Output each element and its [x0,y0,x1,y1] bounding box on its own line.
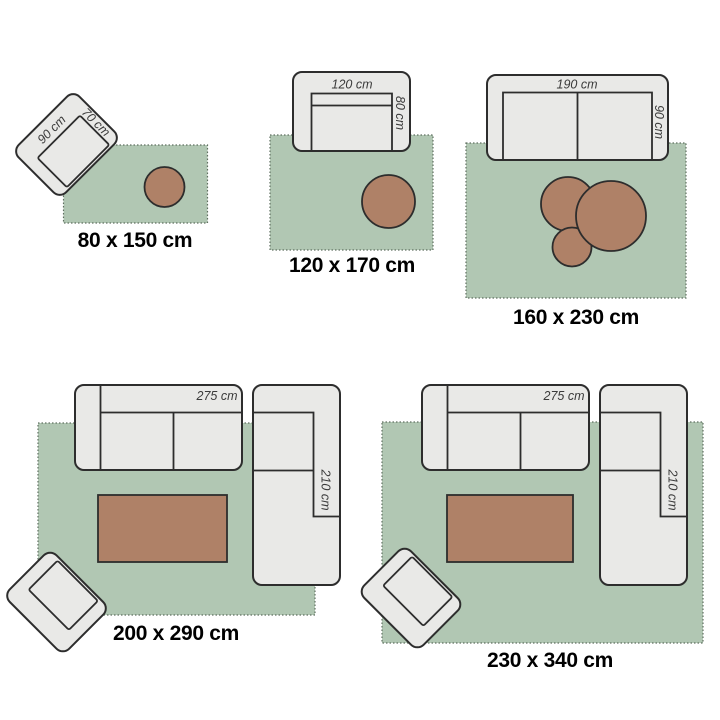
loveseat-sofa: 120 cm 80 cm [293,72,410,151]
rug-size-guide: 90 cm 70 cm 80 x 150 cm 120 cm 80 cm 120… [0,0,720,720]
rug-size-label: 230 x 340 cm [487,649,613,672]
sofa-depth-label: 80 cm [393,96,407,130]
sofa-depth-label: 210 cm [666,469,680,511]
rug-size-label: 120 x 170 cm [289,254,415,277]
rug-size-label: 200 x 290 cm [113,622,239,645]
sofa-width-label: 275 cm [196,389,238,403]
panel-200x290: 275 cm 210 cm 200 x 290 cm [3,385,340,655]
coffee-table [447,495,573,562]
coffee-table [98,495,227,562]
sofa-depth-label: 210 cm [319,469,333,511]
sofa-width-label: 275 cm [543,389,585,403]
sofa-width-label: 190 cm [557,78,598,92]
panel-160x230: 190 cm 90 cm 160 x 230 cm [466,75,686,329]
panel-80x150: 90 cm 70 cm 80 x 150 cm [12,90,207,252]
rug-size-guide-canvas: 90 cm 70 cm 80 x 150 cm 120 cm 80 cm 120… [0,0,720,720]
sofa-width-label: 120 cm [332,78,373,92]
panel-120x170: 120 cm 80 cm 120 x 170 cm [270,72,433,277]
panel-230x340: 275 cm 210 cm 230 x 340 cm [358,385,703,672]
round-table-large [576,181,646,251]
sofa-depth-label: 90 cm [652,105,666,139]
rug-size-label: 160 x 230 cm [513,306,639,329]
two-seater-sofa: 190 cm 90 cm [487,75,668,160]
round-coffee-table [362,175,415,228]
rug-size-label: 80 x 150 cm [78,229,193,252]
round-side-table [145,167,185,207]
